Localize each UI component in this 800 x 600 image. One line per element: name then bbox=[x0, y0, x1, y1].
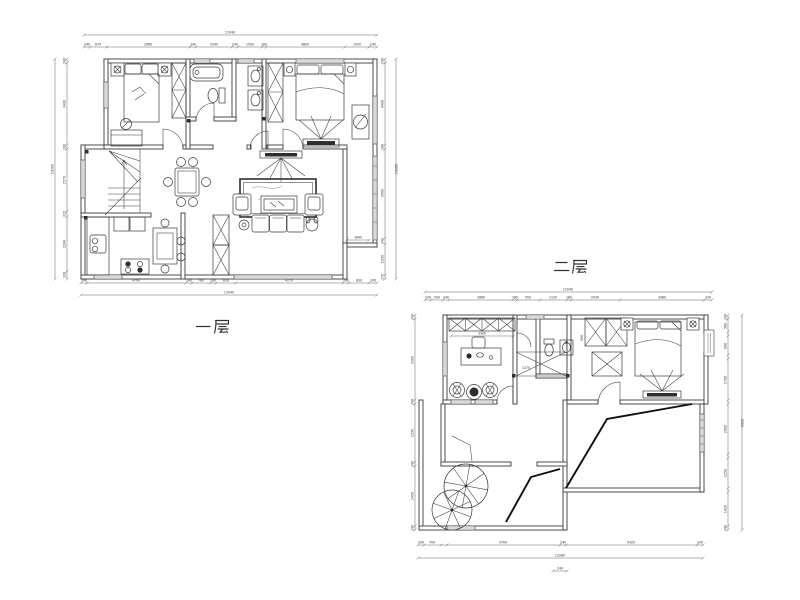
plant-icon bbox=[306, 219, 318, 231]
dim-text: 170 bbox=[381, 274, 385, 280]
wardrobe bbox=[172, 63, 186, 118]
dim-text: 10180 bbox=[51, 164, 55, 174]
pillow bbox=[321, 65, 343, 74]
dim-text: 12040 bbox=[225, 31, 235, 35]
dim-text: 830 bbox=[356, 279, 362, 283]
dim-text: 240 bbox=[425, 296, 431, 300]
floor2-bedroom bbox=[621, 318, 699, 398]
dim-text: 1470 bbox=[522, 366, 530, 370]
nightstand bbox=[284, 63, 295, 76]
floor2-bathroom: 1470 bbox=[516, 339, 573, 376]
dim-text: 4270 bbox=[285, 279, 293, 283]
stove bbox=[121, 259, 149, 274]
dim-text: 240 bbox=[557, 567, 563, 571]
dim-text: 240 bbox=[381, 144, 385, 150]
dim-text: 2660 bbox=[477, 296, 485, 300]
dim-text: 1840 bbox=[354, 236, 362, 240]
dim-text: 240 bbox=[724, 525, 728, 531]
dim-text: 1120 bbox=[549, 296, 557, 300]
dim-text: 2570 bbox=[63, 176, 67, 184]
floor1-dining bbox=[164, 158, 211, 207]
toilet-tank bbox=[544, 339, 554, 344]
stool bbox=[161, 265, 169, 273]
dim-text: 4790 bbox=[132, 279, 140, 283]
dim-text: 870 bbox=[95, 43, 101, 47]
wardrobe bbox=[268, 63, 283, 122]
dim-text: 12280 bbox=[555, 554, 565, 558]
dim-text: 12040 bbox=[563, 288, 573, 292]
floorplan-canvas: 12040 240 870 3360 240 2040 240 1500 160… bbox=[0, 0, 800, 600]
stool bbox=[161, 219, 169, 227]
dining-chair bbox=[164, 178, 173, 187]
bed bbox=[296, 74, 344, 120]
pillow bbox=[125, 64, 141, 74]
spiral-staircase bbox=[432, 464, 488, 530]
dining-table bbox=[175, 168, 199, 196]
dim-text: 780 bbox=[198, 279, 204, 283]
floor1-bathroom bbox=[190, 64, 225, 103]
floor1-plan bbox=[81, 59, 377, 279]
dim-text: 1290 bbox=[381, 255, 385, 263]
floor1-kitchen bbox=[87, 217, 185, 275]
dim-text: 1250 bbox=[724, 469, 728, 477]
dim-text: 240 bbox=[411, 314, 415, 320]
dim-text: 2330 bbox=[411, 429, 415, 437]
cabinet bbox=[114, 217, 129, 231]
dim-text: 330 bbox=[63, 272, 67, 278]
dresser bbox=[111, 130, 142, 146]
dining-chair bbox=[189, 198, 198, 207]
floorplan-drawing: 12040 240 870 3360 240 2040 240 1500 160… bbox=[0, 0, 800, 600]
dining-chair bbox=[189, 158, 198, 167]
dim-text: 10180 bbox=[395, 164, 399, 174]
floor2-attic bbox=[432, 404, 692, 530]
desk-chair bbox=[472, 337, 485, 348]
side-table bbox=[239, 220, 249, 230]
floor1-label bbox=[197, 321, 229, 334]
dim-text: 800 bbox=[724, 343, 728, 349]
dim-text: 950 bbox=[525, 296, 531, 300]
dim-text: 240 bbox=[411, 399, 415, 405]
tv-icon bbox=[307, 141, 335, 145]
dim-text: 5420 bbox=[627, 541, 635, 545]
dim-text: 1700 bbox=[724, 376, 728, 384]
dim-text: 240 bbox=[186, 279, 192, 283]
dim-text: 240 bbox=[343, 279, 349, 283]
nightstand bbox=[345, 63, 356, 76]
dim-text: 4800 bbox=[301, 43, 309, 47]
floor1-washroom bbox=[248, 66, 263, 110]
floor1-staircase bbox=[105, 149, 141, 215]
island-table bbox=[153, 228, 177, 264]
dim-text: 240 bbox=[411, 525, 415, 531]
dim-text: 8920 bbox=[741, 419, 745, 427]
sloped-ceiling-hatch bbox=[516, 352, 566, 376]
sofa-seat bbox=[270, 215, 287, 232]
dim-text: 2030 bbox=[591, 296, 599, 300]
dim-text: 160 bbox=[566, 296, 572, 300]
dim-text: 330 bbox=[705, 296, 711, 300]
floor2-walls bbox=[419, 315, 708, 530]
dim-text: 3280 bbox=[411, 356, 415, 364]
dim-text: 700 bbox=[429, 541, 435, 545]
dim-text: 240 bbox=[381, 238, 385, 244]
floor2-wardrobe: 900 bbox=[580, 318, 627, 376]
dim-text: 3900 bbox=[381, 189, 385, 197]
dim-text: 1420 bbox=[724, 505, 728, 513]
dim-text: 900 bbox=[580, 335, 584, 341]
dim-text: 240 bbox=[418, 541, 424, 545]
dim-text: 240 bbox=[63, 58, 67, 64]
dim-text: 240 bbox=[381, 58, 385, 64]
tv-icon bbox=[265, 153, 297, 157]
bed bbox=[635, 322, 681, 376]
dim-text: 3360 bbox=[144, 43, 152, 47]
floor2-label bbox=[555, 261, 587, 274]
dining-chair bbox=[177, 198, 186, 207]
sofa-seat bbox=[252, 215, 269, 232]
dim-text: 240 bbox=[210, 279, 216, 283]
toilet bbox=[545, 344, 553, 356]
tv-icon bbox=[647, 393, 677, 397]
dim-text: 3400 bbox=[63, 100, 67, 108]
dim-text: 500 bbox=[434, 296, 440, 300]
dim-text: 240 bbox=[697, 541, 703, 545]
coffee-table bbox=[261, 196, 297, 213]
dim-text: 1000 bbox=[353, 43, 361, 47]
floor1-living-room bbox=[213, 151, 323, 275]
floor2-plan: 3300 1470 900 bbox=[419, 315, 714, 530]
dim-text: 160 bbox=[512, 296, 518, 300]
toilet-tank bbox=[219, 88, 225, 103]
dim-text: 2040 bbox=[210, 43, 218, 47]
dim-text: 240 bbox=[411, 461, 415, 467]
chair-frame bbox=[352, 105, 369, 139]
dim-text: 160 bbox=[261, 43, 267, 47]
dim-text: 1500 bbox=[246, 43, 254, 47]
dim-text: 4700 bbox=[499, 541, 507, 545]
dim-text: 560 bbox=[724, 323, 728, 329]
pillow bbox=[142, 64, 158, 74]
cabinet bbox=[130, 217, 145, 231]
dim-text: 3400 bbox=[381, 100, 385, 108]
roof-line bbox=[452, 436, 472, 461]
dim-text: 215 bbox=[63, 211, 67, 217]
dim-text: 240 bbox=[560, 541, 566, 545]
dim-text: 3300 bbox=[478, 332, 486, 336]
dining-chair bbox=[202, 178, 211, 187]
sloped-ceiling-line bbox=[566, 404, 692, 488]
floor2-bay-window bbox=[704, 330, 714, 356]
dim-text: 240 bbox=[81, 279, 87, 283]
dim-text: 240 bbox=[190, 43, 196, 47]
dim-text: 2080 bbox=[724, 425, 728, 433]
floor1-bedroom1 bbox=[111, 63, 186, 146]
dining-chair bbox=[177, 158, 186, 167]
bed bbox=[124, 74, 159, 122]
dim-text: 190 bbox=[63, 144, 67, 150]
dim-text: 830 bbox=[223, 279, 229, 283]
sloped-ceiling-line bbox=[506, 469, 560, 522]
dim-text: 240 bbox=[370, 43, 376, 47]
pillow bbox=[297, 65, 319, 74]
dim-text: 240 bbox=[443, 296, 449, 300]
dim-text: 2240 bbox=[63, 240, 67, 248]
dim-text: 240 bbox=[84, 43, 90, 47]
dim-text: 12040 bbox=[224, 291, 234, 295]
dim-text: 240 bbox=[232, 43, 238, 47]
sofa-seat bbox=[287, 215, 304, 232]
toilet bbox=[208, 89, 218, 103]
floor2-study: 3300 bbox=[449, 318, 515, 400]
dim-text: 3480 bbox=[658, 296, 666, 300]
dim-text: 240 bbox=[724, 314, 728, 320]
dim-text: 330 bbox=[370, 279, 376, 283]
dim-text: 2450 bbox=[411, 492, 415, 500]
